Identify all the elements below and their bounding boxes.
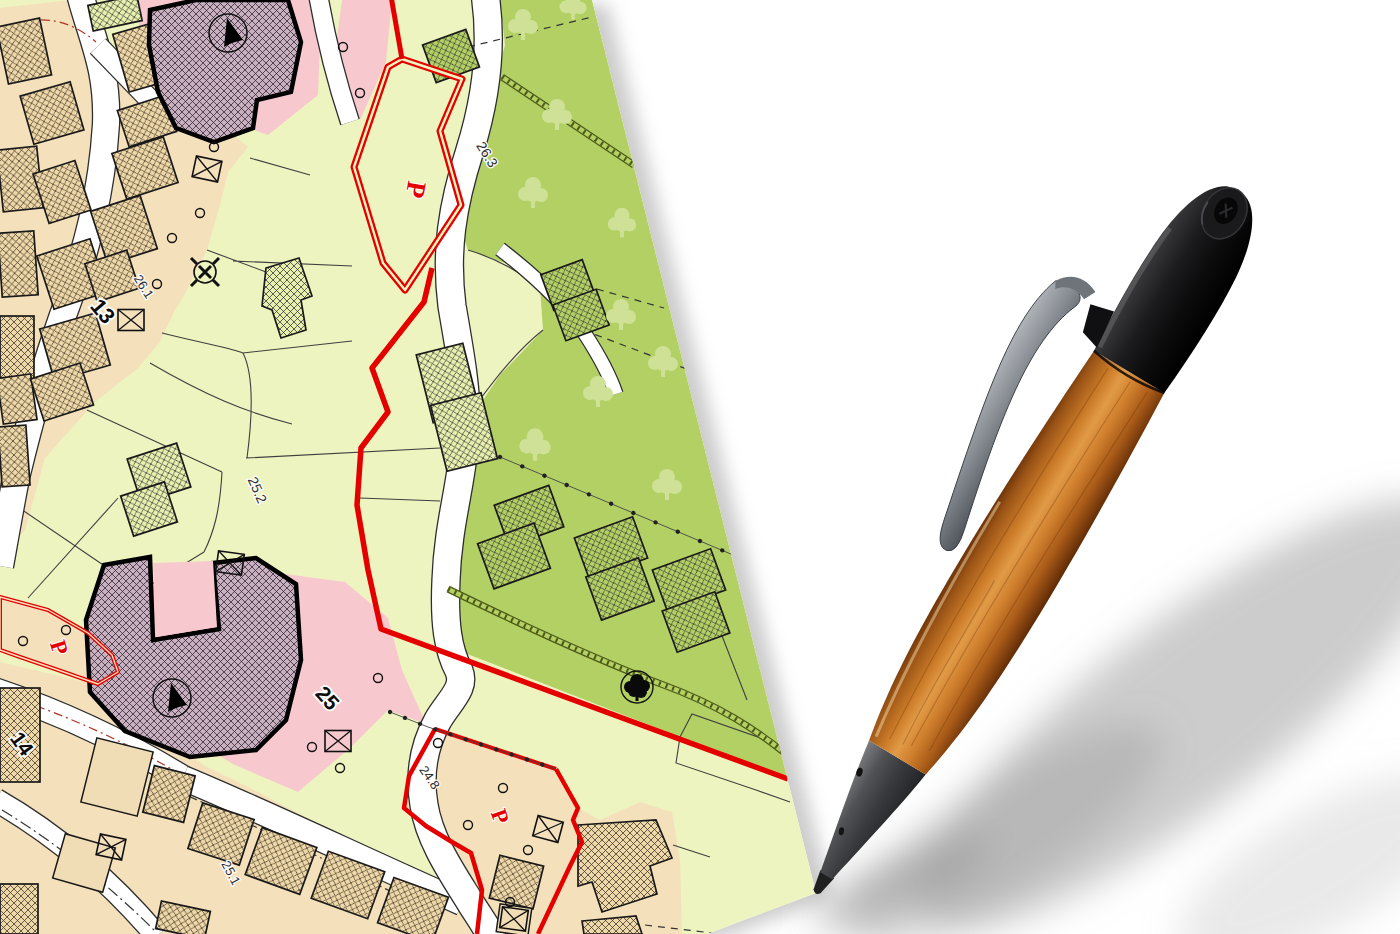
pen-cap (1091, 168, 1276, 395)
building-courtyard-notch (153, 561, 217, 637)
scene-cadastral-map-with-pen: 13142526.126.325.224.825.1PPP (0, 0, 1400, 934)
black-tree-symbol (621, 671, 653, 703)
map-sheet: 13142526.126.325.224.825.1PPP (0, 0, 830, 934)
map-and-pen-graphic: 13142526.126.325.224.825.1PPP (0, 0, 1400, 934)
pen-shadow (801, 439, 1400, 934)
